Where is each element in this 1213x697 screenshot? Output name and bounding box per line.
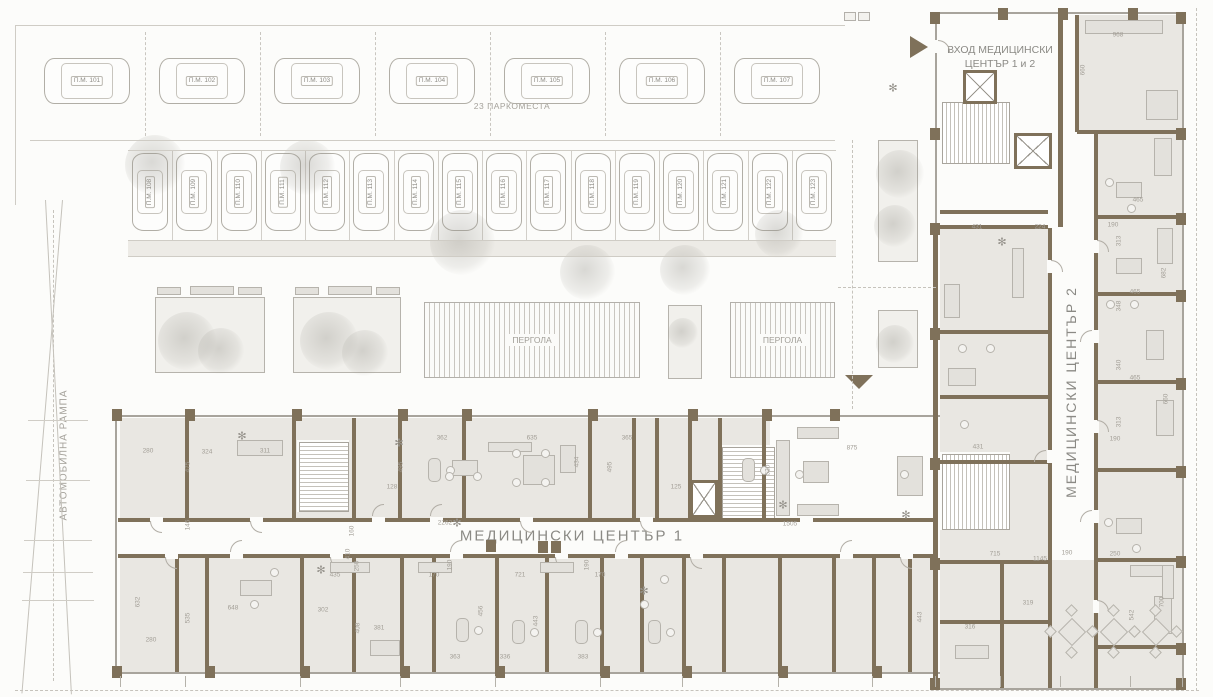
ramp-centerline (53, 210, 54, 681)
structural-column (1176, 213, 1186, 225)
furniture (1162, 565, 1174, 599)
tree (876, 150, 924, 198)
wall-segment (1058, 15, 1063, 227)
dental-chair (512, 620, 525, 644)
parking-bay-divider (490, 32, 491, 136)
ramp-tick (24, 540, 92, 541)
wall-segment (1096, 645, 1182, 649)
door-arc (938, 40, 950, 52)
legend-square (844, 12, 856, 21)
staircase (942, 454, 1010, 530)
structural-column (1176, 643, 1186, 655)
furniture (488, 442, 532, 452)
wall-segment (718, 418, 722, 518)
chair (960, 420, 969, 429)
chair (250, 600, 259, 609)
dimension-label: 456 (478, 606, 485, 617)
wall-segment (1077, 130, 1182, 134)
parking-space-car: П.М. 104 (389, 58, 475, 104)
exterior-wall (1182, 12, 1184, 690)
dimension-label: 408 (355, 623, 362, 634)
dimension-label: 170 (429, 572, 440, 579)
chair (1106, 300, 1115, 309)
furniture (955, 645, 989, 659)
structural-column (398, 409, 408, 421)
site-boundary-dashed (852, 140, 853, 409)
dimension-label: 431 (973, 444, 984, 451)
site-line (30, 140, 835, 141)
structural-column (486, 540, 496, 552)
wall-segment (300, 558, 304, 672)
site-line (128, 256, 836, 257)
parking-space-car: П.М. 103 (274, 58, 360, 104)
dental-chair (575, 620, 588, 644)
chair (900, 470, 909, 479)
dimension-label: 190 (584, 560, 591, 571)
dimension-label: 125 (671, 484, 682, 491)
parking-space-label: П.М. 120 (676, 176, 686, 208)
dimension-label: 715 (990, 551, 1001, 558)
pergola-2-label: ПЕРГОЛА (757, 334, 808, 346)
structural-column (551, 541, 561, 553)
structural-column (1176, 128, 1186, 140)
dental-chair-stool (530, 628, 539, 637)
door-arc (230, 540, 242, 552)
dimension-label: 302 (318, 607, 329, 614)
parking-space-label: П.М. 115 (455, 176, 465, 208)
ramp-tick (22, 600, 94, 601)
tree (198, 328, 244, 374)
wall-segment (400, 558, 404, 672)
dimension-label: 635 (527, 435, 538, 442)
door-arc (450, 540, 462, 552)
tree (125, 135, 185, 195)
structural-column (1058, 8, 1068, 20)
dimension-label: 968 (1113, 32, 1124, 39)
parking-space-label: П.М. 122 (765, 176, 775, 208)
furniture (1154, 138, 1172, 176)
grid-tick (1130, 676, 1131, 687)
parking-space-label: П.М. 102 (186, 76, 218, 86)
parking-bay-divider (720, 32, 721, 136)
structural-column (930, 558, 940, 570)
parking-space-label: П.М. 103 (301, 76, 333, 86)
grid-tick (935, 676, 936, 687)
dimension-label: 190 (1110, 436, 1121, 443)
dental-chair (648, 620, 661, 644)
chair (270, 568, 279, 577)
parking-space-label: П.М. 113 (366, 176, 376, 208)
wall-segment (832, 558, 836, 672)
dimension-label: 190 (447, 560, 454, 571)
furniture (523, 455, 555, 485)
structural-column (1128, 8, 1138, 20)
furniture (948, 368, 976, 386)
dimension-label: 250 (354, 561, 361, 572)
wall-segment (545, 558, 549, 672)
parking-space-label: П.М. 105 (531, 76, 563, 86)
dimension-label: 280 (143, 448, 154, 455)
structural-column (830, 409, 840, 421)
furniture (944, 284, 960, 318)
furniture (240, 580, 272, 596)
entrance-arrow-down-icon (845, 375, 873, 389)
parking-space-car: П.М. 114 (398, 153, 434, 231)
parking-space-label: П.М. 109 (189, 176, 199, 208)
dimension-label: 324 (202, 449, 213, 456)
wall-segment (940, 560, 1048, 564)
parking-space-car: П.М. 123 (796, 153, 832, 231)
site-line (15, 25, 845, 26)
dimension-label: 224 (1035, 224, 1046, 231)
staircase (299, 442, 349, 512)
site-boundary-dashed (1196, 8, 1197, 691)
plant-icon: ✻ (237, 430, 246, 443)
dental-chair (742, 458, 755, 482)
dental-chair (456, 618, 469, 642)
dimension-label: 363 (450, 654, 461, 661)
parking-space-label: П.М. 107 (761, 76, 793, 86)
bench (238, 287, 262, 295)
wall-segment (640, 558, 644, 672)
dimension-label: 443 (917, 612, 924, 623)
parking-space-car: П.М. 102 (159, 58, 245, 104)
door-arc (840, 540, 852, 552)
plant-icon: ✻ (639, 585, 648, 598)
wall-segment (940, 210, 1048, 214)
dimension-label: 250 (1110, 551, 1121, 558)
entrance-arrow-right-icon (910, 36, 928, 58)
furniture (1146, 90, 1178, 120)
structural-column (300, 666, 310, 678)
door-gap (1093, 330, 1099, 343)
wall-segment (940, 620, 1048, 624)
dimension-label: 660 (1080, 65, 1087, 76)
dimension-label: 190 (1108, 222, 1119, 229)
plant-icon: ✻ (997, 236, 1006, 249)
pergola-2: ПЕРГОЛА (730, 302, 835, 378)
ramp-edge (21, 200, 63, 693)
parking-bay-divider (703, 150, 704, 240)
chair (640, 600, 649, 609)
medical-center-2-label: МЕДИЦИНСКИ ЦЕНТЪР 2 (1063, 286, 1079, 498)
dimension-label: 362 (437, 435, 448, 442)
chair (986, 344, 995, 353)
dimension-label: 313 (1116, 236, 1123, 247)
site-line (15, 25, 16, 205)
grid-tick (300, 676, 301, 687)
dimension-label: 535 (185, 613, 192, 624)
dimension-label: 465 (1130, 375, 1141, 382)
dimension-label: 365 (622, 435, 633, 442)
structural-column (930, 328, 940, 340)
grid-tick (1182, 676, 1183, 687)
structural-column (600, 666, 610, 678)
dimension-label: 660 (1163, 394, 1170, 405)
wall-segment (778, 558, 782, 672)
furniture (797, 427, 839, 439)
chair (1104, 518, 1113, 527)
structural-column (778, 666, 788, 678)
tree (668, 318, 698, 348)
structural-column (185, 409, 195, 421)
parking-space-car: П.М. 110 (221, 153, 257, 231)
parking-space-car: П.М. 117 (530, 153, 566, 231)
dimension-label: 434 (574, 457, 581, 468)
parking-space-label: П.М. 114 (411, 176, 421, 208)
pergola-1: ПЕРГОЛА (424, 302, 640, 378)
dimension-label: 146 (185, 520, 192, 531)
structural-column (1176, 290, 1186, 302)
chair (512, 449, 521, 458)
dimension-label: 520 (765, 465, 772, 476)
wall-segment (688, 418, 692, 518)
wall-segment (940, 395, 1048, 399)
chair (541, 478, 550, 487)
chair (445, 472, 454, 481)
structural-column (112, 409, 122, 421)
plant-icon: ✻ (901, 509, 910, 522)
grid-tick (1060, 676, 1061, 687)
plant-icon: ✻ (452, 517, 461, 530)
parking-space-label: П.М. 118 (588, 176, 598, 208)
plant-icon: ✻ (888, 82, 897, 95)
plant-icon: ✻ (316, 564, 325, 577)
dimension-label: 128 (387, 484, 398, 491)
parking-space-label: П.М. 123 (809, 176, 819, 208)
pergola-1-label: ПЕРГОЛА (506, 334, 557, 346)
ramp-tick (26, 480, 90, 481)
grid-tick (600, 676, 601, 687)
grid-tick (778, 676, 779, 687)
structural-column (495, 666, 505, 678)
parking-bay-divider (394, 150, 395, 240)
structural-column (400, 666, 410, 678)
structural-column (292, 409, 302, 421)
wall-segment (588, 418, 592, 518)
door-gap (450, 553, 463, 559)
parking-bay-divider (261, 150, 262, 240)
elevator (963, 70, 997, 104)
door-gap (840, 553, 853, 559)
parking-space-car: П.М. 120 (663, 153, 699, 231)
room-floor (120, 556, 938, 672)
parking-bay-divider (145, 32, 146, 136)
dimension-label: 170 (595, 572, 606, 579)
site-line (128, 240, 836, 241)
legend-square (858, 12, 870, 21)
wall-segment (722, 558, 726, 672)
tree (560, 245, 615, 300)
structural-column (762, 409, 772, 421)
wall-segment (682, 558, 686, 672)
chair (660, 575, 669, 584)
dimension-label: 319 (1023, 600, 1034, 607)
dimension-label: 336 (500, 654, 511, 661)
dimension-label: 632 (135, 597, 142, 608)
parking-bay-divider (605, 32, 606, 136)
site-boundary-dashed (15, 690, 1199, 691)
dimension-label: 700 (1159, 597, 1166, 608)
bench (190, 286, 234, 295)
furniture (1157, 228, 1173, 264)
wall-segment (1000, 560, 1004, 688)
parking-bay-divider (571, 150, 572, 240)
dimension-label: 495 (398, 462, 405, 473)
dimension-label: 721 (515, 572, 526, 579)
structural-column (930, 12, 940, 24)
structural-column (1176, 678, 1186, 690)
ramp-tick (28, 420, 88, 421)
structural-column (930, 128, 940, 140)
wall-segment (872, 558, 876, 672)
exterior-wall (115, 672, 940, 674)
chair (795, 470, 804, 479)
grid-tick (1000, 676, 1001, 687)
plant-icon: ✻ (394, 437, 403, 450)
furniture (540, 562, 574, 573)
dimension-label: 443 (533, 616, 540, 627)
parking-space-label: П.М. 106 (646, 76, 678, 86)
ramp-tick (23, 572, 93, 573)
chair (541, 449, 550, 458)
door-gap (1093, 510, 1099, 523)
parking-bay-divider (260, 32, 261, 136)
parking-bay-divider (349, 150, 350, 240)
chair (1132, 544, 1141, 553)
parking-space-car: П.М. 119 (619, 153, 655, 231)
parking-bay-divider (748, 150, 749, 240)
dimension-label: 475 (185, 462, 192, 473)
dimension-label: 190 (1062, 550, 1073, 557)
wall-segment (933, 225, 938, 688)
structural-column (205, 666, 215, 678)
structural-column (998, 8, 1008, 20)
plant-icon: ✻ (778, 499, 787, 512)
tree (755, 210, 803, 258)
exterior-wall (115, 415, 940, 417)
furniture (1085, 20, 1163, 34)
elevator (690, 480, 718, 518)
furniture (1156, 400, 1174, 436)
tree (430, 210, 495, 275)
grid-tick (495, 676, 496, 687)
wall-segment (1096, 558, 1182, 562)
dental-chair-stool (474, 626, 483, 635)
tree (874, 205, 916, 247)
dimension-label: 431 (972, 224, 983, 231)
dimension-label: 381 (374, 625, 385, 632)
door-gap (615, 553, 628, 559)
parking-space-car: П.М. 121 (707, 153, 743, 231)
site-boundary-dashed (838, 287, 936, 288)
dimension-label: 340 (1116, 360, 1123, 371)
furniture (797, 504, 839, 516)
door-arc (1051, 260, 1063, 272)
parking-space-car: П.М. 116 (486, 153, 522, 231)
furniture (1012, 248, 1024, 298)
structural-column (1176, 12, 1186, 24)
parking-space-car: П.М. 113 (353, 153, 389, 231)
structural-column (688, 409, 698, 421)
parking-bay-divider (615, 150, 616, 240)
grid-tick (682, 676, 683, 687)
site-line (128, 150, 836, 151)
dimension-label: 648 (228, 605, 239, 612)
dimension-label: 410 (345, 549, 352, 560)
wall-segment (940, 330, 1048, 334)
dimension-label: 316 (965, 624, 976, 631)
parking-space-car: П.М. 101 (44, 58, 130, 104)
wall-segment (940, 225, 1048, 229)
parking-space-car: П.М. 105 (504, 58, 590, 104)
staircase (942, 102, 1010, 164)
dimension-label: 311 (260, 448, 270, 455)
dimension-label: 1145 (1033, 556, 1047, 563)
dimension-label: 435 (330, 572, 341, 579)
furniture (1116, 258, 1142, 274)
parking-space-label: П.М. 101 (71, 76, 103, 86)
furniture (1116, 518, 1142, 534)
wall-segment (292, 418, 296, 518)
structural-column (930, 458, 940, 470)
chair (473, 472, 482, 481)
door-gap (1047, 450, 1053, 463)
structural-column (872, 666, 882, 678)
grid-tick (120, 676, 121, 687)
dimension-label: 280 (146, 637, 157, 644)
wall-segment (655, 418, 659, 518)
door-arc (150, 521, 162, 533)
chair (1105, 178, 1114, 187)
dimension-label: 1505 (783, 521, 797, 528)
dimension-label: 348 (1116, 301, 1123, 312)
wall-segment (352, 558, 356, 672)
door-arc (250, 521, 262, 533)
parking-space-car: П.М. 107 (734, 58, 820, 104)
bench (376, 287, 400, 295)
door-gap (372, 517, 385, 523)
chair (958, 344, 967, 353)
wall-segment (1075, 15, 1079, 132)
dimension-label: 160 (349, 526, 356, 537)
furniture (1146, 330, 1164, 360)
wall-segment (908, 558, 912, 672)
dimension-label: 682 (1161, 268, 1168, 279)
wall-segment (352, 418, 356, 518)
structural-column (538, 541, 548, 553)
exterior-wall (115, 415, 117, 674)
dimension-label: 313 (1116, 417, 1123, 428)
parking-space-label: П.М. 119 (632, 176, 642, 208)
dental-chair (428, 458, 441, 482)
dimension-label: 2262 (438, 520, 452, 527)
wall-segment (495, 558, 499, 672)
bench (328, 286, 372, 295)
chair (1130, 300, 1139, 309)
wall-segment (632, 418, 636, 518)
wall-segment (1096, 215, 1182, 219)
parking-space-label: П.М. 116 (499, 176, 509, 208)
parking-space-label: П.М. 110 (234, 176, 244, 208)
furniture (370, 640, 400, 656)
door-gap (800, 517, 813, 523)
chair (512, 478, 521, 487)
wall-segment (940, 460, 1048, 464)
structural-column (588, 409, 598, 421)
dimension-label: 383 (578, 654, 589, 661)
floor-plan: 23 ПАРКОМЕСТА АВТОМОБИЛНА РАМПА МЕДИЦИНС… (0, 0, 1213, 697)
